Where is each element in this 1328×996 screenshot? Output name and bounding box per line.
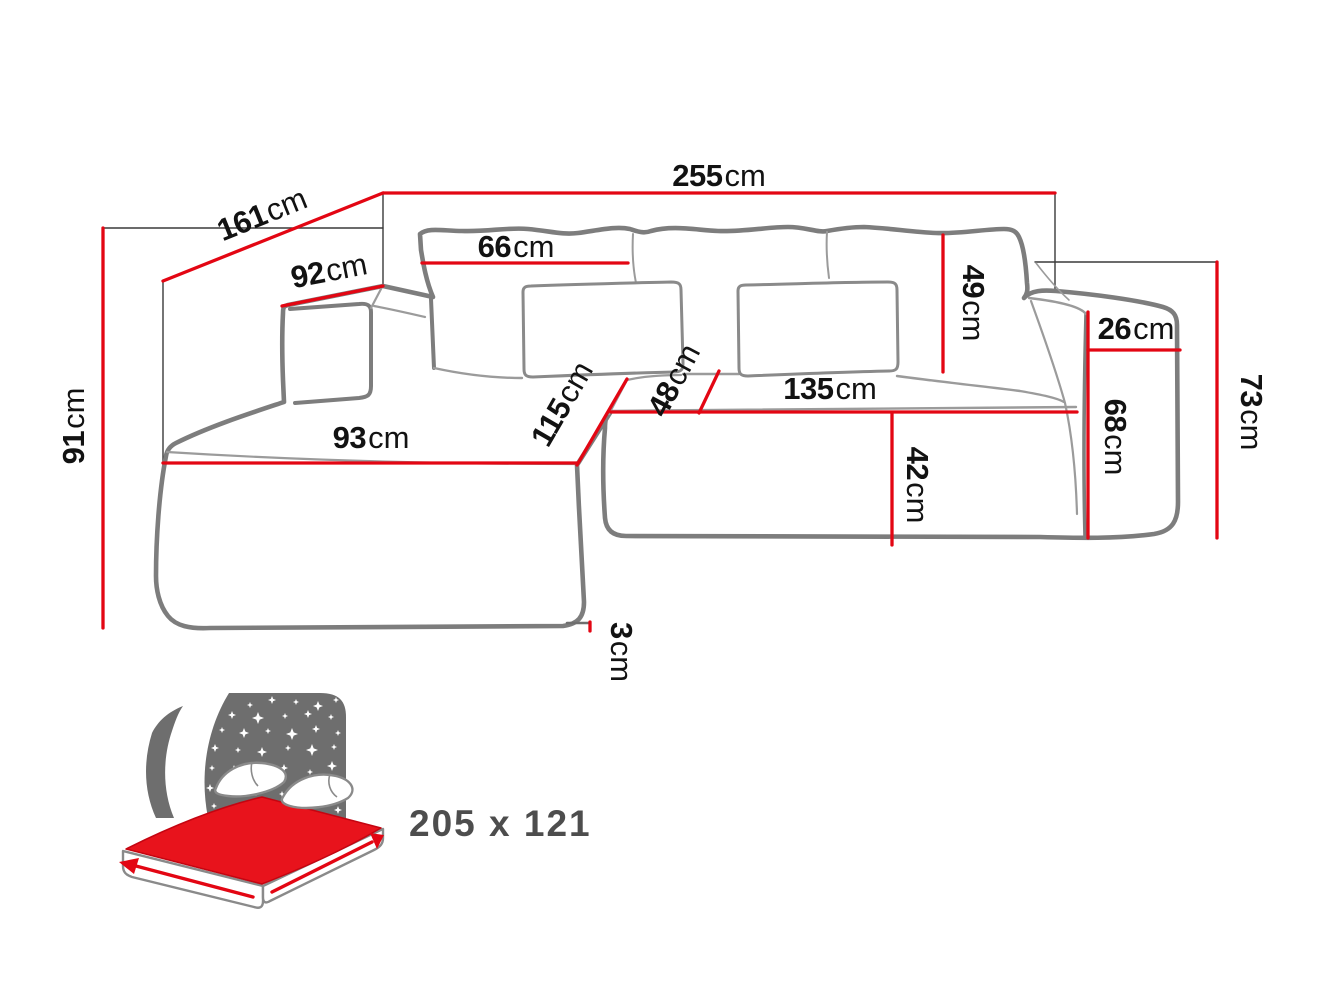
sofa-dimension-diagram: 255cm 161cm 92cm 91cm 66cm 49cm 26cm 68c… [0,0,1328,996]
dim-label-armrest-left-top: 92cm [288,246,370,295]
dim-label-armrest-right-width: 26cm [1098,311,1175,346]
pillow-right [738,282,898,376]
dim-label-leg-height: 3cm [604,622,639,682]
dim-label-chaise-front-width: 93cm [333,420,410,455]
dim-label-total-depth: 161cm [212,181,312,249]
dim-label-armrest-right-height: 68cm [1098,399,1133,476]
dim-label-total-width: 255cm [672,158,766,193]
dim-label-side-height-left: 91cm [56,388,91,465]
sleeping-function-icon [119,693,384,908]
moon-icon [146,706,183,818]
right-armrest-front-edge [1084,314,1086,536]
pillow-left [523,282,683,377]
dim-label-back-cushion-width: 66cm [478,229,555,264]
bed-size-label: 205 x 121 [409,803,592,844]
dim-label-total-height: 73cm [1234,374,1269,451]
diagram-canvas: 255cm 161cm 92cm 91cm 66cm 49cm 26cm 68c… [0,0,1328,996]
dim-label-seat-front-width: 135cm [783,371,877,406]
dim-label-seat-front-height: 42cm [900,447,935,524]
dim-label-back-cushion-height: 49cm [956,265,991,342]
